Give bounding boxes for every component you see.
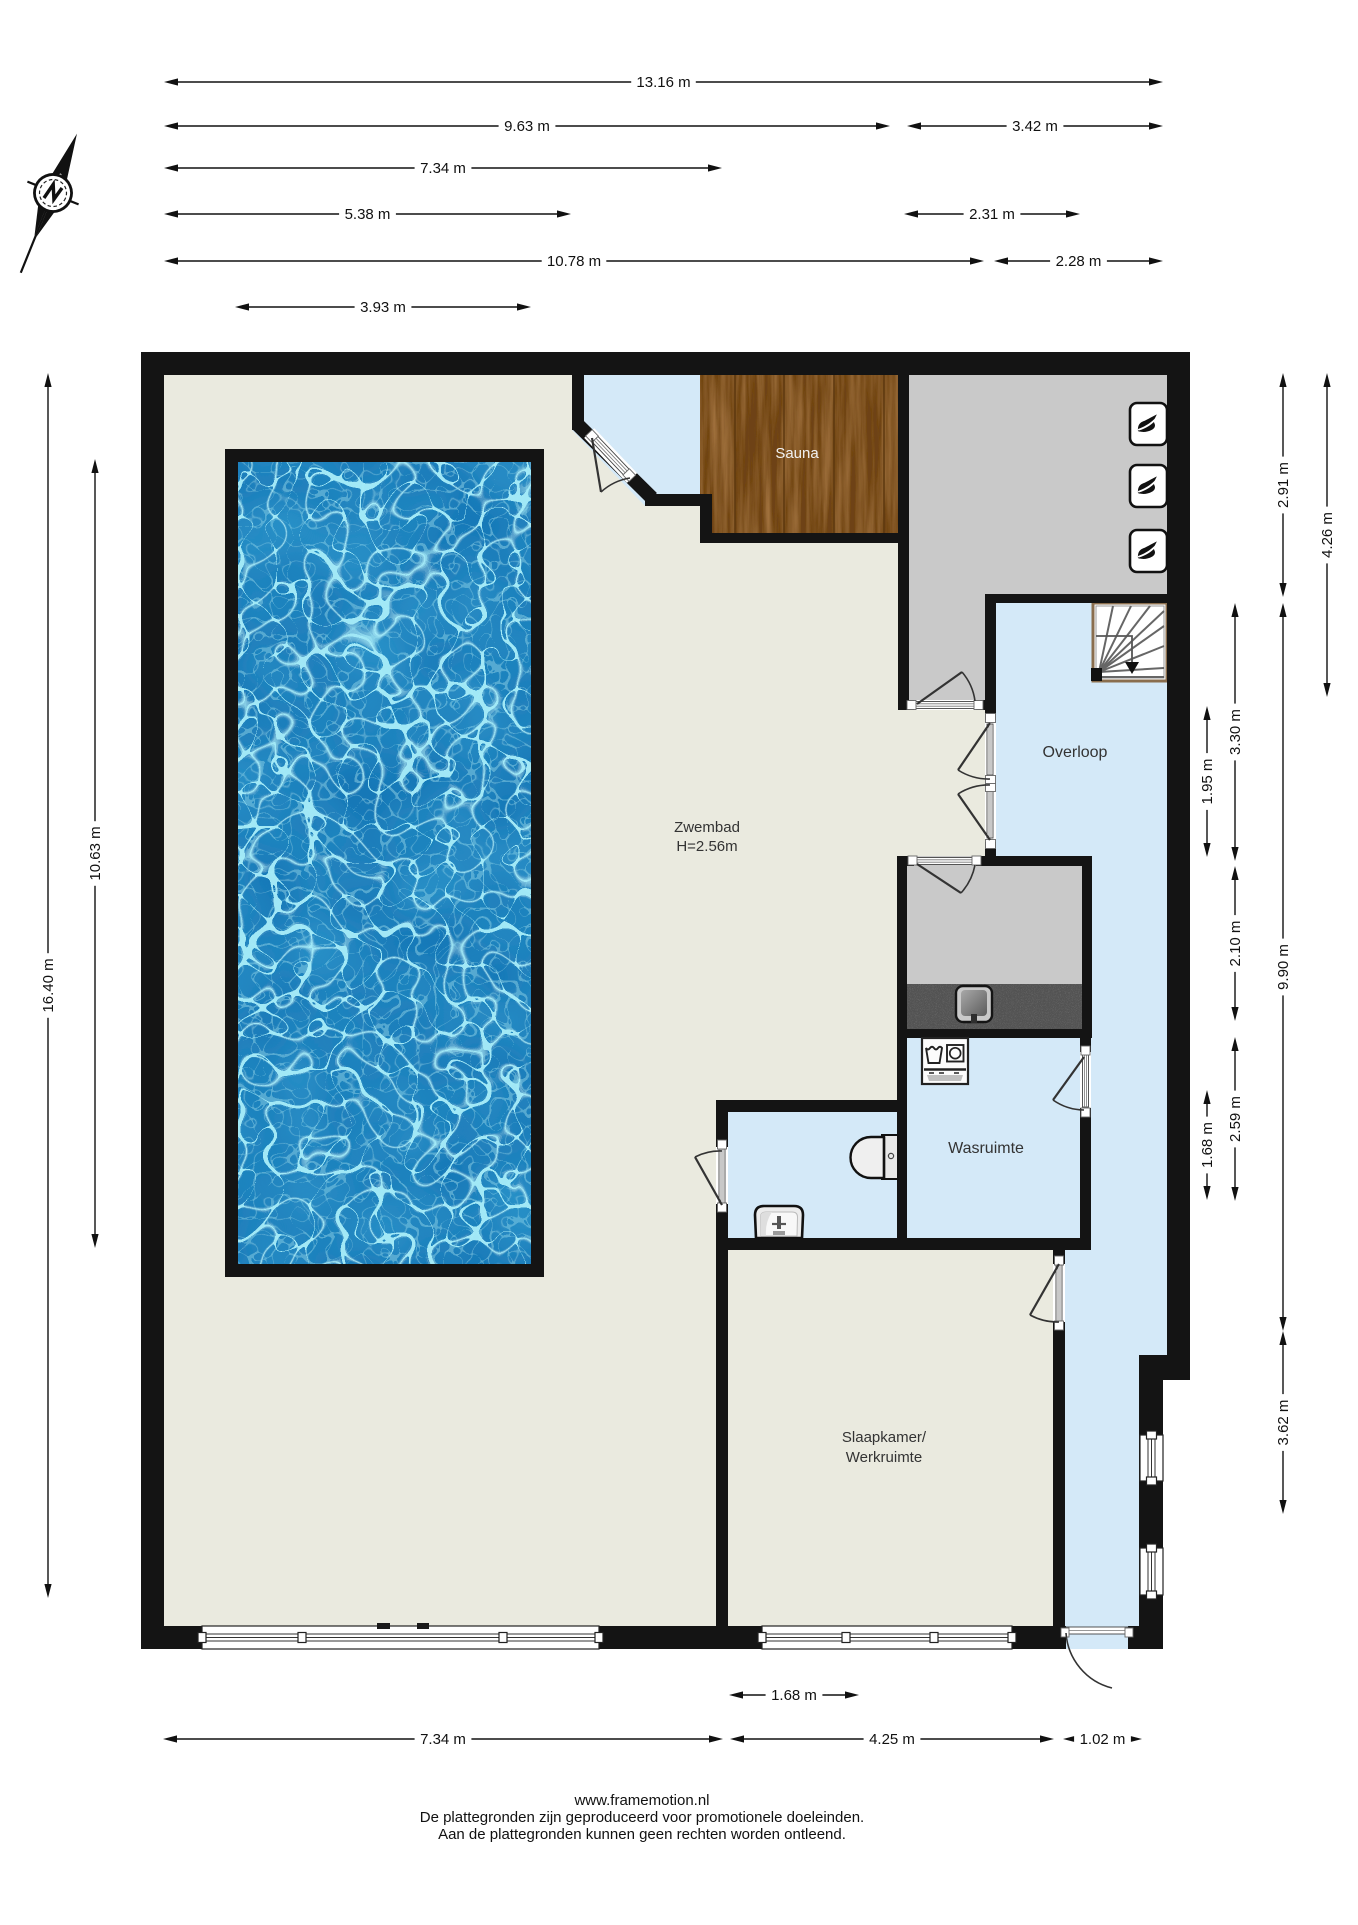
svg-text:2.28 m: 2.28 m bbox=[1056, 253, 1102, 270]
svg-text:9.90 m: 9.90 m bbox=[1275, 944, 1292, 990]
svg-text:7.34 m: 7.34 m bbox=[420, 1731, 466, 1748]
svg-text:Werkruimte: Werkruimte bbox=[846, 1449, 922, 1466]
svg-text:H=2.56m: H=2.56m bbox=[676, 838, 737, 855]
svg-text:Overloop: Overloop bbox=[1043, 744, 1108, 761]
svg-text:2.91 m: 2.91 m bbox=[1275, 462, 1292, 508]
svg-text:Wasruimte: Wasruimte bbox=[948, 1140, 1024, 1157]
svg-text:3.93 m: 3.93 m bbox=[360, 299, 406, 316]
svg-text:13.16 m: 13.16 m bbox=[636, 74, 690, 91]
svg-text:7.34 m: 7.34 m bbox=[420, 160, 466, 177]
svg-text:4.26 m: 4.26 m bbox=[1319, 512, 1336, 558]
svg-text:Slaapkamer/: Slaapkamer/ bbox=[842, 1429, 927, 1446]
svg-text:1.68 m: 1.68 m bbox=[1199, 1122, 1216, 1168]
svg-text:3.42 m: 3.42 m bbox=[1012, 118, 1058, 135]
svg-text:Zwembad: Zwembad bbox=[674, 819, 740, 836]
svg-text:Sauna: Sauna bbox=[775, 445, 819, 462]
svg-text:3.62 m: 3.62 m bbox=[1275, 1400, 1292, 1446]
svg-text:10.78 m: 10.78 m bbox=[547, 253, 601, 270]
svg-text:1.68 m: 1.68 m bbox=[771, 1687, 817, 1704]
svg-text:2.10 m: 2.10 m bbox=[1227, 921, 1244, 967]
svg-text:16.40 m: 16.40 m bbox=[40, 958, 57, 1012]
svg-text:Aan de plattegronden kunnen ge: Aan de plattegronden kunnen geen rechten… bbox=[438, 1826, 846, 1843]
svg-text:1.95 m: 1.95 m bbox=[1199, 759, 1216, 805]
svg-text:5.38 m: 5.38 m bbox=[345, 206, 391, 223]
svg-text:3.30 m: 3.30 m bbox=[1227, 709, 1244, 755]
svg-text:2.31 m: 2.31 m bbox=[969, 206, 1015, 223]
svg-text:1.02 m: 1.02 m bbox=[1080, 1731, 1126, 1748]
svg-text:2.59 m: 2.59 m bbox=[1227, 1096, 1244, 1142]
svg-text:www.framemotion.nl: www.framemotion.nl bbox=[573, 1792, 709, 1809]
svg-text:10.63 m: 10.63 m bbox=[87, 826, 104, 880]
svg-text:4.25 m: 4.25 m bbox=[869, 1731, 915, 1748]
svg-text:De plattegronden zijn geproduc: De plattegronden zijn geproduceerd voor … bbox=[420, 1809, 864, 1826]
svg-text:9.63 m: 9.63 m bbox=[504, 118, 550, 135]
